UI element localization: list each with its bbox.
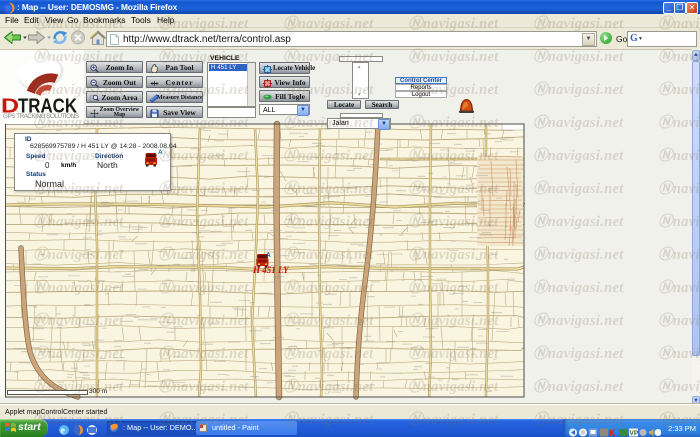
svg-text:VP: VP [630,430,639,437]
svg-text:K: K [609,428,616,437]
